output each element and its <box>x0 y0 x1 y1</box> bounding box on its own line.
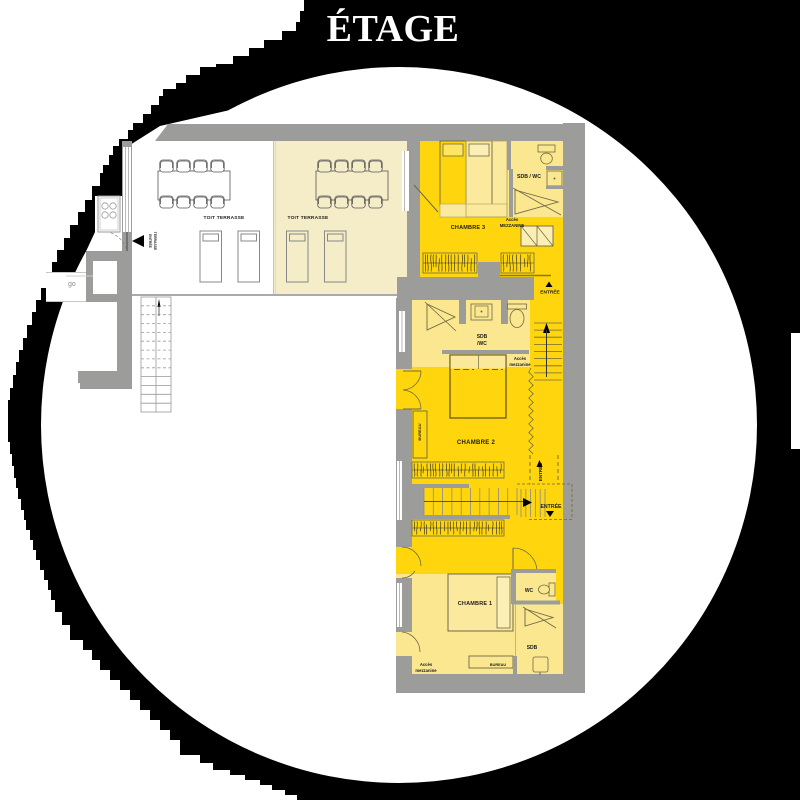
svg-text:BUREAU: BUREAU <box>490 663 507 667</box>
svg-text:TERRASSE: TERRASSE <box>153 232 157 251</box>
svg-text:Accès: Accès <box>514 356 527 361</box>
svg-text:CHAMBRE 1: CHAMBRE 1 <box>458 601 493 607</box>
svg-text:go: go <box>68 281 76 288</box>
svg-text:SDB: SDB <box>477 334 488 340</box>
svg-text:CHAMBRE 3: CHAMBRE 3 <box>451 225 486 231</box>
svg-text:TOIT TERRASSE: TOIT TERRASSE <box>204 215 245 221</box>
svg-text:MEZZANINE: MEZZANINE <box>500 223 525 228</box>
svg-text:ÉTAGE: ÉTAGE <box>327 8 460 50</box>
svg-text:Accès: Accès <box>420 662 433 667</box>
svg-text:TOIT TERRASSE: TOIT TERRASSE <box>288 215 329 221</box>
svg-text:mezzanine: mezzanine <box>509 362 531 367</box>
svg-text:WC: WC <box>525 588 534 594</box>
svg-text:CHAMBRE 2: CHAMBRE 2 <box>457 440 496 446</box>
svg-text:ENTRÉE: ENTRÉE <box>540 502 562 510</box>
svg-text:ENTRÉE: ENTRÉE <box>148 234 153 248</box>
svg-text:mezzanine: mezzanine <box>415 668 437 673</box>
svg-text:SDB / WC: SDB / WC <box>517 174 541 180</box>
svg-text:SDB: SDB <box>527 645 538 651</box>
svg-text:BUREAU: BUREAU <box>417 423 422 440</box>
svg-text:Accès: Accès <box>506 217 519 222</box>
svg-text:/WC: /WC <box>477 341 487 347</box>
